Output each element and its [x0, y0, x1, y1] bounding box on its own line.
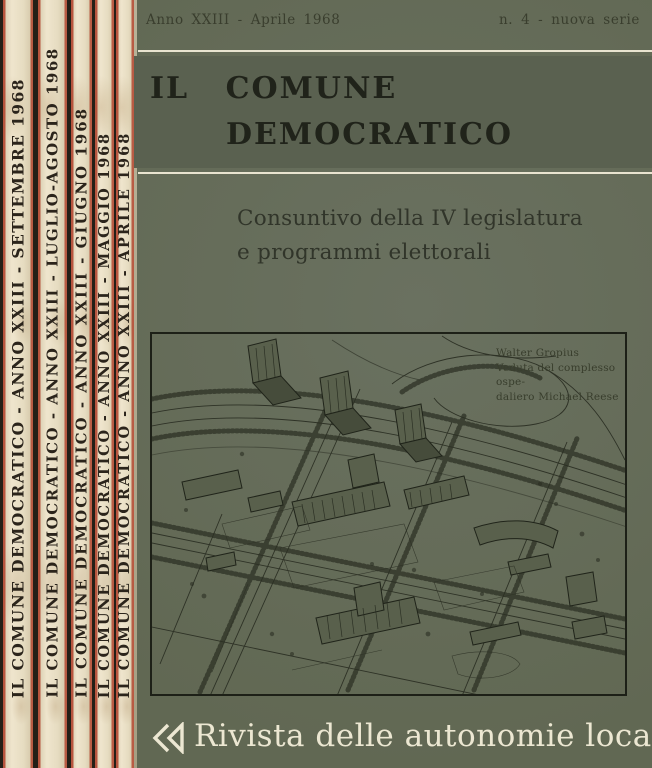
magazine-tagline: Rivista delle autonomie locali — [194, 710, 652, 762]
spine-giugno-1968: IL COMUNE DEMOCRATICO - ANNO XXIII - GIU… — [71, 0, 92, 768]
spine-title: IL COMUNE DEMOCRATICO - ANNO XXIII - SET… — [11, 78, 27, 698]
cover-footer: Rivista delle autonomie locali — [134, 706, 652, 768]
illustration-caption: Walter Gropius Veduta del complesso ospe… — [496, 346, 626, 404]
rule-below-title — [138, 172, 652, 174]
issue-number: n. 4 - nuova serie — [499, 12, 640, 28]
front-cover: Anno XXIII - Aprile 1968 n. 4 - nuova se… — [134, 0, 652, 768]
magazine-title-line2: DEMOCRATICO — [226, 112, 652, 158]
spine-luglio-agosto-1968: IL COMUNE DEMOCRATICO - ANNO XXIII - LUG… — [38, 0, 67, 768]
cover-header: Anno XXIII - Aprile 1968 n. 4 - nuova se… — [146, 12, 640, 28]
issue-date: Anno XXIII - Aprile 1968 — [146, 12, 340, 28]
spine-title: IL COMUNE DEMOCRATICO - ANNO XXIII - LUG… — [45, 48, 61, 698]
caption-line3: daliero Michael Reese — [496, 390, 626, 405]
subtitle-line2: e programmi elettorali — [237, 236, 583, 270]
rule-above-title — [138, 50, 652, 52]
spine-title: IL COMUNE DEMOCRATICO - ANNO XXIII - GIU… — [74, 107, 90, 698]
publisher-mark-icon — [150, 722, 188, 754]
spine-aprile-1968: IL COMUNE DEMOCRATICO - ANNO XXIII - APR… — [116, 0, 134, 768]
spine-title: IL COMUNE DEMOCRATICO - ANNO XXIII - APR… — [117, 132, 132, 699]
caption-line2: Veduta del complesso ospe- — [496, 361, 626, 390]
magazine-title-line1: IL COMUNE — [150, 66, 652, 112]
caption-line1: Walter Gropius — [496, 346, 626, 361]
cover-illustration-frame: Walter Gropius Veduta del complesso ospe… — [150, 332, 627, 696]
spine-settembre-1968: IL COMUNE DEMOCRATICO - ANNO XXIII - SET… — [3, 0, 33, 768]
title-band: IL COMUNE DEMOCRATICO — [134, 56, 652, 168]
spine-title: IL COMUNE DEMOCRATICO - ANNO XXIII - MAG… — [96, 132, 111, 698]
subtitle-line1: Consuntivo della IV legislatura — [237, 202, 583, 236]
spine-maggio-1968: IL COMUNE DEMOCRATICO - ANNO XXIII - MAG… — [95, 0, 114, 768]
spines-stack: IL COMUNE DEMOCRATICO - ANNO XXIII - SET… — [0, 0, 134, 768]
issue-subtitle: Consuntivo della IV legislatura e progra… — [237, 202, 583, 270]
